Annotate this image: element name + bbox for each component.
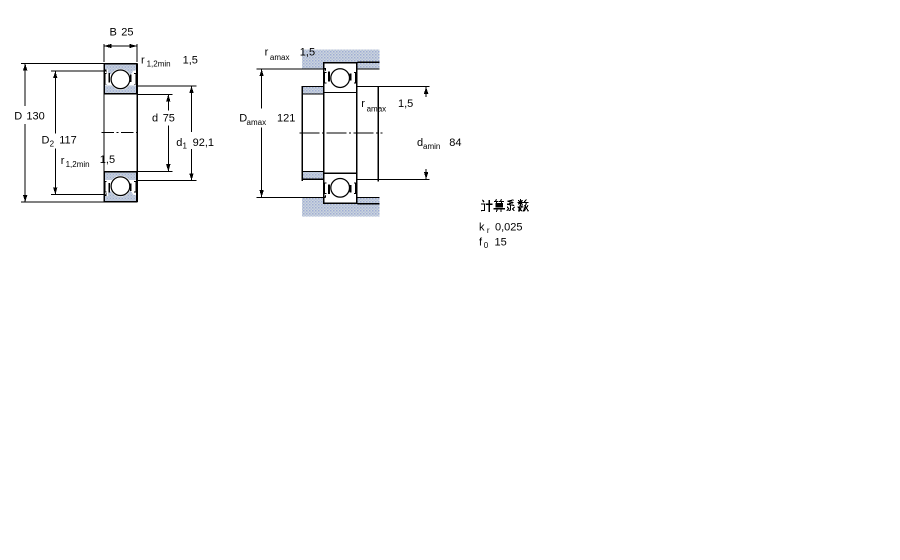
svg-text:k: k xyxy=(479,221,485,233)
svg-text:2: 2 xyxy=(50,140,55,149)
svg-text:1,5: 1,5 xyxy=(398,98,413,110)
svg-text:d: d xyxy=(152,113,158,125)
svg-text:d: d xyxy=(176,137,182,149)
svg-text:75: 75 xyxy=(163,113,175,125)
svg-text:0: 0 xyxy=(484,241,489,250)
svg-text:92,1: 92,1 xyxy=(193,137,214,149)
svg-text:amax: amax xyxy=(247,118,267,127)
svg-text:84: 84 xyxy=(449,137,461,149)
svg-text:1,2min: 1,2min xyxy=(66,160,90,169)
svg-text:121: 121 xyxy=(277,112,295,124)
svg-text:1,5: 1,5 xyxy=(183,54,198,66)
svg-text:r: r xyxy=(361,98,365,110)
svg-text:r: r xyxy=(265,47,269,59)
svg-text:15: 15 xyxy=(495,236,507,248)
svg-text:130: 130 xyxy=(26,111,44,123)
svg-text:1,5: 1,5 xyxy=(100,154,115,166)
svg-text:amax: amax xyxy=(270,53,290,62)
svg-text:0,025: 0,025 xyxy=(495,221,523,233)
svg-text:r: r xyxy=(487,226,490,235)
svg-text:D: D xyxy=(42,135,50,147)
svg-text:r: r xyxy=(61,155,65,167)
svg-text:D: D xyxy=(14,111,22,123)
svg-text:amin: amin xyxy=(423,142,440,151)
svg-text:1: 1 xyxy=(183,142,188,151)
svg-text:117: 117 xyxy=(59,135,77,147)
svg-text:1,5: 1,5 xyxy=(300,47,315,59)
svg-text:B: B xyxy=(110,26,117,38)
svg-text:amax: amax xyxy=(367,104,387,113)
svg-text:1,2min: 1,2min xyxy=(147,60,171,69)
svg-text:25: 25 xyxy=(121,26,133,38)
svg-text:r: r xyxy=(141,54,145,66)
